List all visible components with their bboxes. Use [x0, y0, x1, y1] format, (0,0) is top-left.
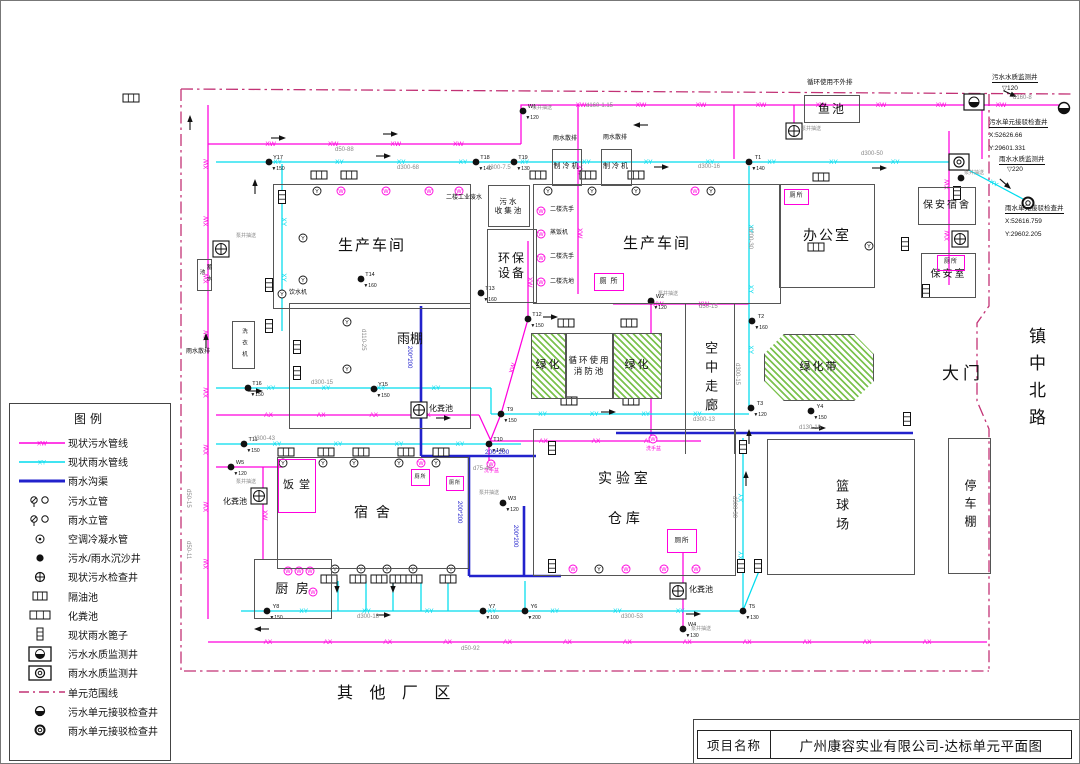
annotation: d160-8	[1013, 95, 1032, 102]
flow-arrow	[743, 471, 748, 486]
svg-text:XW: XW	[696, 102, 707, 109]
building-label-toilet-warehouse: 厕所	[675, 537, 690, 545]
building-label-sewage-collection-pool: 污水 收集池	[495, 197, 524, 216]
flow-arrow	[872, 165, 887, 170]
svg-text:XY: XY	[538, 411, 547, 418]
building-sewage-collection-pool: 污水 收集池	[488, 185, 530, 227]
svg-text:AX: AX	[803, 639, 812, 646]
building-label-corridor: 空中走廊	[702, 341, 718, 417]
svg-text:▼150: ▼150	[250, 392, 264, 398]
rain-grate-icon	[740, 441, 747, 454]
sewage-pipe: AXAXAXAXAXAXAXAXAXAXAXAX	[208, 639, 987, 646]
other-factory-area-label: 其 他 厂 区	[337, 679, 456, 703]
legend-item-8: 隔油池	[16, 587, 164, 606]
legend-item-5: 空调冷凝水管	[16, 529, 164, 548]
svg-text:XY: XY	[590, 411, 599, 418]
project-title: 广州康容实业有限公司-达标单元平面图	[771, 731, 1071, 758]
svg-text:AX: AX	[863, 639, 872, 646]
dot-well-T9: T9▼150	[498, 407, 517, 424]
building-label-green-left: 绿化	[536, 359, 562, 373]
svg-text:▼120: ▼120	[233, 471, 247, 477]
dot-well-T16: T16▼150	[245, 381, 264, 398]
legend-symbol	[16, 703, 68, 719]
annotation: 泵井抽送	[964, 171, 984, 177]
svg-text:▼160: ▼160	[754, 325, 768, 331]
title-block: 项目名称 广州康容实业有限公司-达标单元平面图	[693, 719, 1079, 764]
legend-label: 现状污水管线	[68, 435, 128, 450]
building-parking-shed: 停车棚	[948, 438, 991, 574]
legend-symbol	[16, 626, 68, 642]
annotation: 化粪池	[223, 498, 247, 507]
annotation: 200*200	[405, 346, 412, 368]
svg-text:▼130: ▼130	[685, 633, 699, 639]
oil-separator-icon	[398, 448, 414, 456]
svg-text:XY: XY	[334, 441, 343, 448]
legend-symbol	[16, 646, 68, 662]
legend-symbol: XW	[16, 435, 68, 451]
svg-text:XW: XW	[756, 102, 767, 109]
annotation: ▽120	[1002, 85, 1018, 92]
pump-well	[952, 231, 968, 247]
oil-icon	[18, 588, 66, 604]
line-sew-icon: XW	[18, 435, 66, 451]
legend-label: 雨水立管	[68, 512, 108, 527]
svg-text:▼120: ▼120	[753, 412, 767, 418]
legend-symbol: XY	[16, 454, 68, 470]
legend-symbol	[16, 511, 68, 527]
annotation: Y:29602.205	[1005, 231, 1042, 238]
legend-symbol	[16, 722, 68, 738]
svg-text:XW: XW	[203, 501, 210, 512]
rain-grate-icon	[266, 320, 273, 333]
oil-separator-icon	[350, 575, 366, 583]
svg-text:XY: XY	[676, 608, 685, 615]
svg-text:▼130: ▼130	[745, 615, 759, 621]
oil-separator-icon	[440, 575, 456, 583]
flow-arrow	[654, 164, 669, 169]
svg-text:XW: XW	[876, 102, 887, 109]
building-label-workshop-right: 生产车间	[623, 235, 691, 254]
rain-pipe: XYXY	[738, 438, 745, 611]
svg-text:T16: T16	[252, 381, 261, 387]
legend-item-3: 污水立管	[16, 491, 164, 510]
svg-text:T18: T18	[480, 155, 489, 161]
annotation: d300-16	[698, 164, 720, 171]
building-label-chiller-1: 制冷机	[554, 163, 581, 172]
annotation: 200*200	[511, 525, 518, 547]
svg-text:XW: XW	[265, 141, 276, 148]
legend-label: 空调冷凝水管	[68, 531, 128, 546]
unit-boundary-line	[181, 89, 1073, 94]
annotation: d50-15	[184, 489, 191, 508]
svg-text:XY: XY	[456, 441, 465, 448]
building-fish-pond: 鱼池	[804, 95, 860, 123]
annotation: d50-92	[461, 646, 480, 653]
insp-icon	[18, 569, 66, 585]
msew-icon	[18, 646, 66, 662]
svg-text:▼200: ▼200	[527, 615, 541, 621]
svg-text:XW: XW	[391, 141, 402, 148]
svg-text:XY: XY	[267, 385, 276, 392]
annotation: 二楼洗地	[550, 279, 574, 286]
septic-well	[251, 488, 267, 504]
building-green-left: 绿化	[531, 333, 566, 399]
svg-text:Y6: Y6	[531, 604, 538, 610]
building-workshop-right: 生产车间	[533, 184, 781, 304]
annotation: d130-18	[799, 425, 821, 432]
building-label-dining-hall: 饭 堂	[283, 479, 311, 493]
svg-text:T12: T12	[532, 312, 541, 318]
rain-pipe: XYXYXYXYXYXYXYXYXYXYXY	[216, 159, 957, 166]
annotation: 泵井抽送	[658, 292, 678, 298]
bound-icon	[18, 684, 66, 700]
flow-arrow	[543, 314, 558, 319]
mrain-well	[949, 154, 969, 170]
annotation: 泵井抽送	[236, 480, 256, 486]
annotation: d300-18	[357, 614, 379, 621]
annotation: 雨水单元接驳检查井	[1005, 205, 1064, 214]
svg-text:T10: T10	[493, 437, 502, 443]
annotation: 蒸饭机	[550, 230, 568, 237]
rain-grate-icon	[755, 560, 762, 573]
svg-text:XY: XY	[747, 345, 754, 354]
building-toilet-office: 厕所	[784, 189, 809, 205]
annotation: 雨水水质监测井	[999, 156, 1045, 165]
annotation: d50-88	[335, 147, 354, 154]
svg-text:XW: XW	[203, 215, 210, 226]
legend-label: 污水单元接驳检查井	[68, 704, 158, 719]
annotation: 实 验 室	[598, 471, 648, 486]
legend-item-11: 污水水质监测井	[16, 644, 164, 663]
svg-text:T19: T19	[518, 155, 527, 161]
svg-text:T9: T9	[507, 407, 513, 413]
flow-arrow	[686, 611, 701, 616]
mrain-icon	[18, 665, 66, 681]
annotation: 污水水质监测井	[992, 74, 1038, 83]
legend-label: 现状污水检查井	[68, 569, 138, 584]
csew-well	[1059, 103, 1070, 114]
annotation: d300-15	[311, 380, 333, 387]
svg-text:XW: XW	[203, 444, 210, 455]
svg-text:▼150: ▼150	[271, 166, 285, 172]
oil-separator-icon	[353, 448, 369, 456]
svg-text:XY: XY	[582, 159, 591, 166]
legend-panel: 图例 XW现状污水管线XY现状雨水管线雨水沟渠污水立管雨水立管空调冷凝水管污水/…	[9, 403, 171, 761]
svg-text:T5: T5	[749, 604, 755, 610]
annotation: d200-30	[746, 227, 753, 249]
building-label-toilet-dorm-1: 厕所	[414, 474, 426, 480]
svg-text:Y4: Y4	[817, 404, 824, 410]
flow-arrow	[187, 115, 192, 130]
legend-symbol	[16, 569, 68, 585]
svg-text:XW: XW	[936, 102, 947, 109]
svg-text:Y17: Y17	[273, 155, 283, 161]
svg-text:AX: AX	[383, 639, 392, 646]
svg-text:XW: XW	[508, 361, 518, 374]
flow-arrow	[383, 131, 398, 136]
building-label-dormitory: 宿 舍	[354, 504, 392, 522]
annotation: 雨水散排	[553, 136, 577, 143]
legend-symbol	[16, 607, 68, 623]
svg-text:XW: XW	[203, 158, 210, 169]
legend-label: 污水立管	[68, 493, 108, 508]
annotation: 雨棚	[397, 332, 423, 346]
annotation: 200*200	[455, 501, 462, 523]
annotation: 雨水散排	[186, 349, 210, 356]
building-label-storage-pool: 蓄水池	[198, 260, 212, 290]
building-toilet-dorm-1: 厕所	[411, 469, 430, 486]
building-label-guard-room: 保安室	[931, 269, 967, 282]
annotation: 仓 库	[608, 511, 640, 526]
building-toilet-warehouse: 厕所	[667, 529, 697, 553]
svg-text:XY: XY	[38, 460, 46, 466]
gate-label: 大门	[942, 359, 984, 384]
line-rain-icon: XY	[18, 454, 66, 470]
legend-symbol	[16, 492, 68, 508]
building-label-toilet-guard: 厕所	[944, 259, 958, 267]
svg-text:XW: XW	[203, 387, 210, 398]
annotation: ▽220	[1007, 166, 1023, 173]
septic-well	[670, 583, 686, 599]
grate-icon	[18, 626, 66, 642]
building-label-toilet-workshop: 厕 所	[600, 278, 619, 287]
svg-text:AX: AX	[743, 639, 752, 646]
oil-separator-icon	[341, 171, 357, 179]
rain-grate-icon	[902, 238, 909, 251]
annotation: 二楼洗手	[550, 207, 574, 214]
svg-text:▼150: ▼150	[503, 418, 517, 424]
svg-text:XY: XY	[459, 159, 468, 166]
svg-text:AX: AX	[324, 639, 333, 646]
project-name-label: 项目名称	[698, 731, 771, 758]
dot-well-Y4: Y4▼150	[808, 404, 827, 421]
annotation: 洗手盆	[646, 447, 661, 453]
legend-label: 现状雨水篦子	[68, 627, 128, 642]
flow-arrow	[376, 153, 391, 158]
svg-text:XW: XW	[453, 141, 464, 148]
annotation: d300-53	[621, 614, 643, 621]
dot-well-W5: W5▼120	[228, 460, 247, 477]
svg-text:AX: AX	[623, 639, 632, 646]
annotation: d300-15	[733, 363, 740, 385]
annotation: Y:29601.331	[989, 145, 1026, 152]
svg-text:▼100: ▼100	[485, 615, 499, 621]
sewage-pipe: XWXWXWXW	[208, 141, 521, 148]
legend-label: 现状雨水管线	[68, 454, 128, 469]
annotation: 二楼洗手	[550, 254, 574, 261]
dot-icon	[18, 550, 66, 566]
sewage-pipe: XW	[261, 467, 268, 559]
svg-text:XY: XY	[641, 411, 650, 418]
svg-text:XW: XW	[636, 102, 647, 109]
svg-text:AX: AX	[443, 639, 452, 646]
svg-text:▼120: ▼120	[653, 305, 667, 311]
annotation: X:52626.66	[989, 132, 1022, 139]
annotation: 化粪池	[689, 586, 713, 595]
annotation: d75-40	[473, 466, 492, 473]
building-toilet-dorm-2: 厕所	[446, 476, 464, 491]
legend-item-9: 化粪池	[16, 606, 164, 625]
legend-items: XW现状污水管线XY现状雨水管线雨水沟渠污水立管雨水立管空调冷凝水管污水/雨水沉…	[16, 433, 164, 740]
building-guard-dormitory: 保安宿舍	[918, 187, 976, 225]
annotation: d300-43	[253, 436, 275, 443]
legend-title: 图例	[16, 410, 164, 427]
building-label-toilet-office: 厕所	[789, 193, 803, 201]
svg-text:▼130: ▼130	[516, 166, 530, 172]
building-label-toilet-dorm-2: 厕所	[449, 480, 461, 486]
annotation: 循环使用不外排	[807, 79, 853, 86]
riser-rain-icon	[18, 511, 66, 527]
flow-arrow	[254, 626, 269, 631]
svg-text:▼120: ▼120	[525, 115, 539, 121]
annotation: d300-68	[397, 165, 419, 172]
svg-text:▼120: ▼120	[505, 507, 519, 513]
channel-icon	[18, 473, 66, 489]
annotation: 200*200	[485, 449, 509, 456]
annotation: d300-50	[861, 151, 883, 158]
legend-item-2: 雨水沟渠	[16, 471, 164, 490]
oil-separator-icon	[580, 171, 596, 179]
legend-label: 污水水质监测井	[68, 646, 138, 661]
svg-text:XY: XY	[335, 159, 344, 166]
building-label-washing-machine: 洗衣机	[240, 328, 247, 363]
svg-text:XY: XY	[738, 493, 745, 502]
building-dining-hall: 饭 堂	[278, 459, 316, 513]
legend-label: 化粪池	[68, 608, 98, 623]
pump-well	[213, 241, 229, 257]
building-label-office: 办公室	[803, 227, 851, 245]
oil-separator-icon	[318, 448, 334, 456]
svg-text:XW: XW	[944, 230, 951, 241]
annotation: d50-15	[699, 304, 718, 311]
building-fire-pool: 循环使用 消防池	[566, 333, 613, 399]
annotation: 饮水机	[289, 290, 307, 297]
dot-well-T2: T2▼160	[749, 314, 768, 331]
legend-label: 隔油池	[68, 589, 98, 604]
septic-icon	[18, 607, 66, 623]
building-label-kitchen: 厨 房	[275, 581, 311, 597]
building-basketball-court: 篮球场	[767, 439, 915, 575]
building-chiller-2: 制冷机	[601, 149, 632, 186]
crain-icon	[18, 722, 66, 738]
sewage-pipe: XWXWXWXWXWXWXWXW	[203, 105, 210, 619]
annotation: 泵井抽送	[801, 127, 821, 133]
oil-separator-icon	[371, 575, 387, 583]
building-washing-machine: 洗衣机	[232, 321, 255, 369]
building-label-parking-shed: 停车棚	[962, 479, 977, 533]
rain-grate-icon	[266, 279, 273, 292]
svg-text:XW: XW	[996, 102, 1007, 109]
svg-text:AX: AX	[503, 639, 512, 646]
oil-separator-icon	[530, 171, 546, 179]
title-block-table: 项目名称 广州康容实业有限公司-达标单元平面图	[697, 730, 1072, 759]
svg-text:▼140: ▼140	[751, 166, 765, 172]
flow-arrow	[252, 179, 257, 194]
svg-text:AX: AX	[923, 639, 932, 646]
svg-text:W3: W3	[508, 496, 516, 502]
svg-text:XY: XY	[767, 159, 776, 166]
site-plan-drawing: XWXWXWXWXWXWXWXWXWXWXWXWXWXWXWXWXWXWXWXW…	[0, 0, 1080, 764]
building-toilet-guard: 厕所	[937, 255, 965, 271]
legend-symbol	[16, 550, 68, 566]
svg-text:XY: XY	[891, 159, 900, 166]
legend-label: 污水/雨水沉沙井	[68, 550, 141, 565]
dot-well-W3: W3▼120	[500, 496, 519, 513]
building-label-fish-pond: 鱼池	[818, 102, 846, 117]
building-chiller-1: 制冷机	[552, 149, 582, 186]
legend-item-15: 雨水单元接驳检查井	[16, 721, 164, 740]
legend-item-10: 现状雨水篦子	[16, 625, 164, 644]
dot-well-T3: T3▼120	[748, 401, 767, 418]
msew-well	[964, 94, 984, 110]
annotation: d160-1.15	[586, 103, 613, 110]
building-storage-pool: 蓄水池	[197, 259, 212, 291]
annotation: 污水单元接驳检查井	[989, 119, 1048, 128]
svg-text:AX: AX	[683, 639, 692, 646]
legend-item-6: 污水/雨水沉沙井	[16, 548, 164, 567]
oil-separator-icon	[278, 448, 294, 456]
annotation: X:52616.759	[1005, 218, 1042, 225]
annotation: 二楼工业废水	[446, 195, 482, 202]
annotation: 化粪池	[429, 405, 453, 414]
building-label-basketball-court: 篮球场	[833, 479, 849, 536]
svg-text:AX: AX	[264, 412, 273, 419]
annotation: d300-13	[693, 417, 715, 424]
annotation: 雨水散排	[603, 135, 627, 142]
svg-text:XY: XY	[988, 179, 1000, 190]
svg-text:XY: XY	[644, 159, 653, 166]
building-kitchen: 厨 房	[254, 559, 332, 619]
building-env-equipment: 环保 设备	[487, 229, 537, 303]
annotation: d50-11	[184, 541, 191, 559]
svg-text:XW: XW	[261, 510, 268, 521]
legend-item-1: XY现状雨水管线	[16, 452, 164, 471]
building-label-green-belt: 绿化带	[800, 361, 839, 375]
building-label-chiller-2: 制冷机	[603, 163, 630, 172]
building-label-green-right: 绿化	[625, 359, 651, 373]
legend-item-4: 雨水立管	[16, 510, 164, 529]
legend-item-14: 污水单元接驳检查井	[16, 702, 164, 721]
building-label-guard-dormitory: 保安宿舍	[923, 200, 971, 213]
legend-symbol	[16, 665, 68, 681]
oil-separator-icon	[390, 575, 406, 583]
annotation: 泵井抽送	[479, 491, 499, 497]
svg-text:▼150: ▼150	[246, 448, 260, 454]
oil-separator-icon	[433, 448, 449, 456]
annotation: 泵井抽送	[532, 106, 552, 112]
svg-text:T1: T1	[755, 155, 761, 161]
annotation: d300-7.5	[487, 165, 511, 172]
oil-separator-icon	[558, 319, 574, 327]
building-label-fire-pool: 循环使用 消防池	[568, 355, 610, 376]
svg-text:XW: XW	[203, 558, 210, 569]
annotation: d300-30	[730, 496, 737, 518]
building-lab-warehouse	[533, 429, 736, 576]
ac-icon	[18, 531, 66, 547]
csew-icon	[18, 703, 66, 719]
legend-label: 单元范围线	[68, 685, 118, 700]
legend-item-7: 现状污水检查井	[16, 567, 164, 586]
svg-text:Y7: Y7	[489, 604, 496, 610]
legend-symbol	[16, 473, 68, 489]
svg-text:T3: T3	[757, 401, 763, 407]
flow-arrow	[633, 122, 648, 127]
svg-text:XY: XY	[550, 608, 559, 615]
legend-item-12: 雨水水质监测井	[16, 663, 164, 682]
building-toilet-workshop: 厕 所	[594, 273, 624, 291]
flow-arrow	[998, 177, 1013, 191]
building-label-workshop-left: 生产车间	[338, 237, 406, 256]
